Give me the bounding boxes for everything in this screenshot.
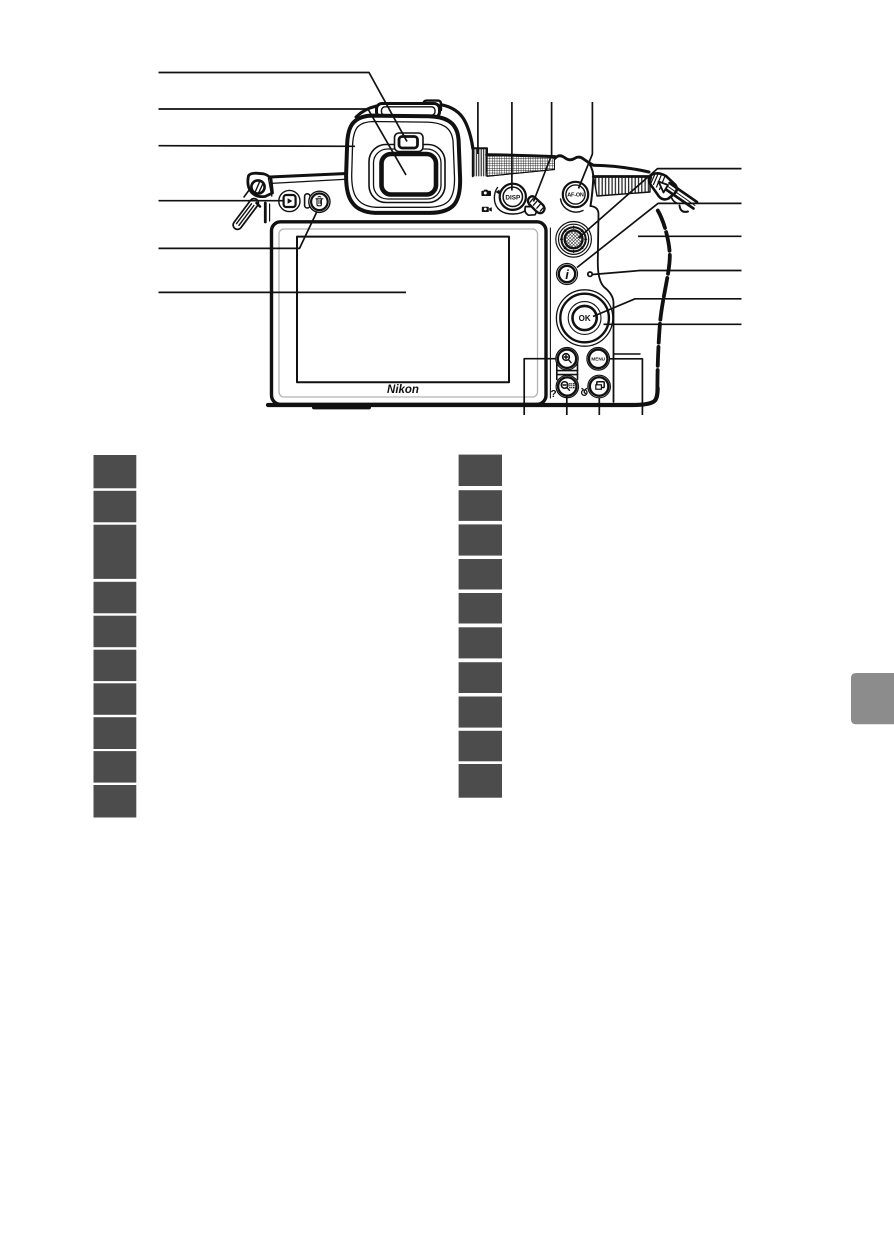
svg-text:MENU: MENU (591, 357, 605, 362)
svg-text:Nikon: Nikon (387, 384, 419, 396)
svg-text:i: i (565, 267, 569, 282)
svg-text:OK: OK (579, 314, 591, 323)
svg-text:?: ? (550, 389, 556, 400)
svg-text:AF-ON: AF-ON (567, 193, 584, 199)
svg-text:DISP: DISP (505, 194, 521, 201)
